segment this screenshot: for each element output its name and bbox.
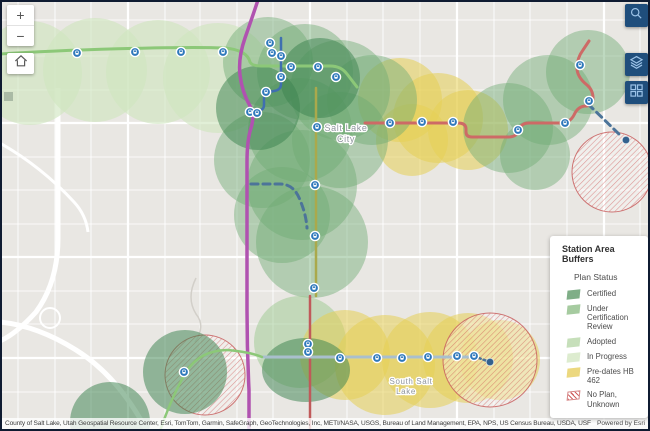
station-marker[interactable] [513,125,522,134]
legend-swatch [567,304,581,315]
legend-item: Under Certification Review [567,304,644,332]
home-button[interactable] [7,53,34,74]
basemap-gallery-button[interactable] [625,81,648,104]
station-marker[interactable] [448,117,457,126]
station-marker[interactable] [130,47,139,56]
legend-panel: Station Area Buffers Plan Status Certifi… [550,236,648,418]
place-label: South Salt [390,377,433,386]
buffer-under_review [500,120,570,190]
legend-swatch [567,289,581,300]
station-marker[interactable] [312,122,321,131]
station-marker[interactable] [417,117,426,126]
legend-swatch [567,391,581,402]
search-button[interactable] [625,4,648,27]
legend-item: No Plan, Unknown [567,390,644,409]
buffer-certified [280,38,360,118]
zoom-in-button[interactable]: + [7,5,34,25]
zoom-out-button[interactable]: − [7,26,34,46]
station-marker[interactable] [72,48,81,57]
legend-swatch [567,337,581,348]
station-marker[interactable] [276,51,285,60]
station-marker[interactable] [267,48,276,57]
station-marker[interactable] [335,353,344,362]
station-marker[interactable] [176,47,185,56]
station-marker[interactable] [313,62,322,71]
legend-item-label: In Progress [587,352,627,361]
place-label: Salt Lake [325,123,368,133]
station-marker[interactable] [469,351,478,360]
legend-swatch [567,352,581,363]
station-marker[interactable] [276,72,285,81]
legend-item-label: Certified [587,289,616,298]
map-app-window: Salt LakeCitySouth SaltLake + − Station … [0,0,650,431]
layers-icon [628,54,645,76]
station-marker[interactable] [179,367,188,376]
zoom-control: + − [7,5,34,46]
station-marker[interactable] [310,180,319,189]
attribution-bar: County of Salt Lake, Utah Geospatial Res… [2,418,648,429]
legend-item: Pre-dates HB 462 [567,367,644,386]
station-marker[interactable] [423,352,432,361]
attribution-sources: County of Salt Lake, Utah Geospatial Res… [5,420,591,427]
station-marker[interactable] [560,118,569,127]
legend-item: Adopted [567,337,644,347]
search-icon [628,5,645,27]
station-marker[interactable] [372,353,381,362]
legend-swatch [567,367,581,378]
station-marker[interactable] [252,108,261,117]
station-marker[interactable] [575,60,584,69]
line-terminus-dot [486,358,494,366]
powered-by-esri: Powered by Esri [597,420,645,427]
station-marker[interactable] [397,353,406,362]
legend-title: Station Area Buffers [562,244,644,264]
legend-item-label: Under Certification Review [587,304,644,332]
legend-item: In Progress [567,352,644,362]
basemap-grid-icon [628,82,645,104]
station-marker[interactable] [452,351,461,360]
legend-item: Certified [567,289,644,299]
station-marker[interactable] [584,96,593,105]
buffer-under_review [256,186,368,298]
station-marker[interactable] [310,231,319,240]
layers-button[interactable] [625,53,648,76]
line-terminus-dot [622,136,630,144]
station-marker[interactable] [218,47,227,56]
station-marker[interactable] [331,72,340,81]
home-icon [13,53,29,74]
legend-item-label: Pre-dates HB 462 [587,367,644,386]
buffer-no-plan [572,132,650,212]
station-marker[interactable] [303,347,312,356]
station-marker[interactable] [385,118,394,127]
legend-item-label: Adopted [587,337,616,346]
station-marker[interactable] [261,87,270,96]
station-marker[interactable] [309,283,318,292]
station-marker[interactable] [286,62,295,71]
place-label: City [337,134,355,144]
station-marker[interactable] [265,38,274,47]
place-label: Lake [396,387,416,396]
legend-item-label: No Plan, Unknown [587,390,644,409]
legend-subtitle: Plan Status [574,272,644,282]
